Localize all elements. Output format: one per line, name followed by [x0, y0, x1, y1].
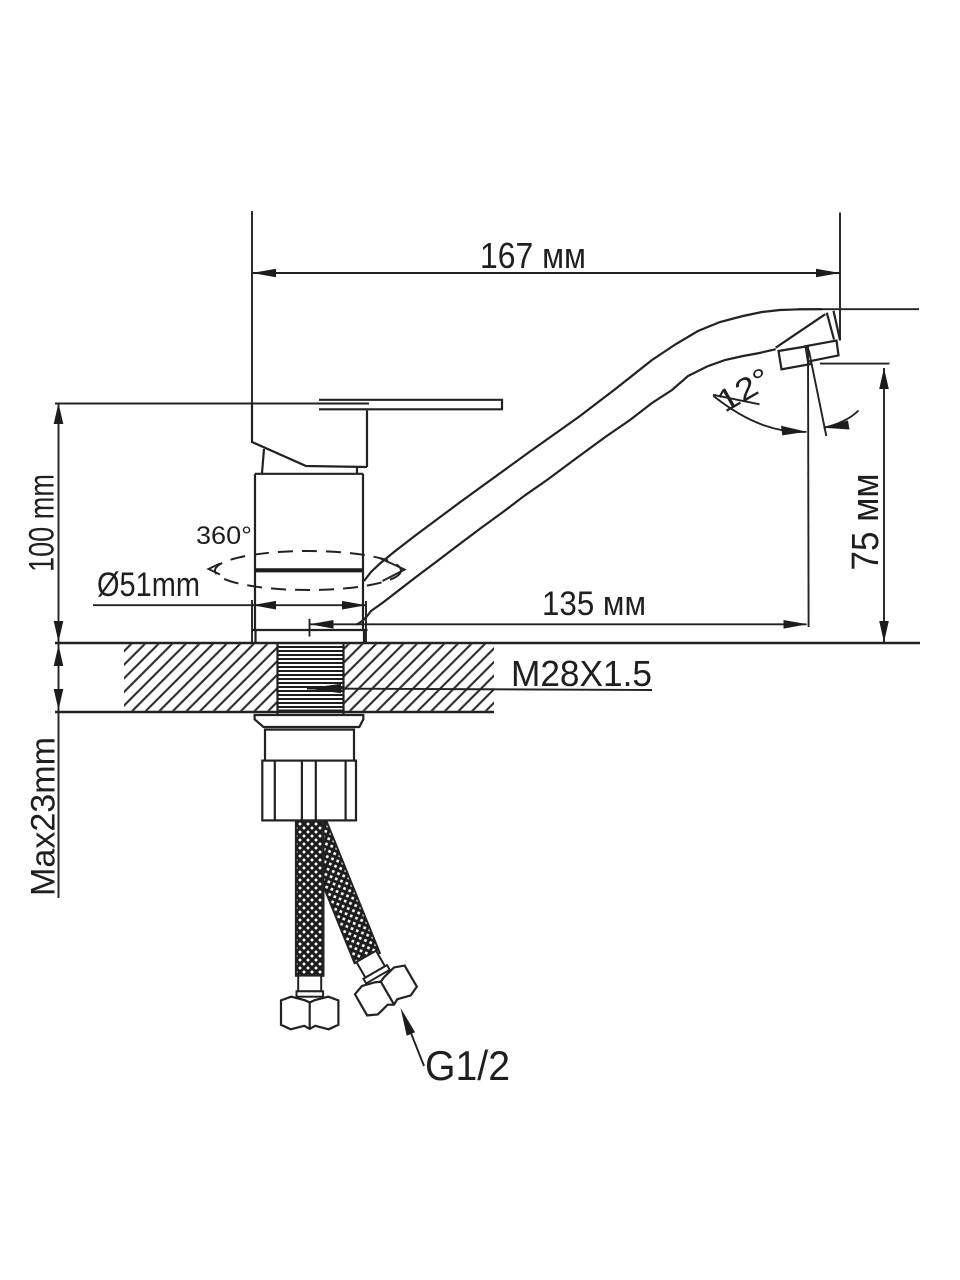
- svg-text:135 мм: 135 мм: [542, 585, 646, 623]
- svg-text:Max23mm: Max23mm: [25, 737, 63, 896]
- svg-text:167 мм: 167 мм: [480, 235, 586, 276]
- svg-text:360°: 360°: [196, 522, 252, 550]
- svg-text:G1/2: G1/2: [425, 1042, 510, 1089]
- svg-text:75 мм: 75 мм: [845, 474, 887, 571]
- svg-text:100 mm: 100 mm: [23, 474, 62, 572]
- svg-text:M28X1.5: M28X1.5: [511, 653, 652, 694]
- svg-text:Ø51mm: Ø51mm: [97, 566, 200, 604]
